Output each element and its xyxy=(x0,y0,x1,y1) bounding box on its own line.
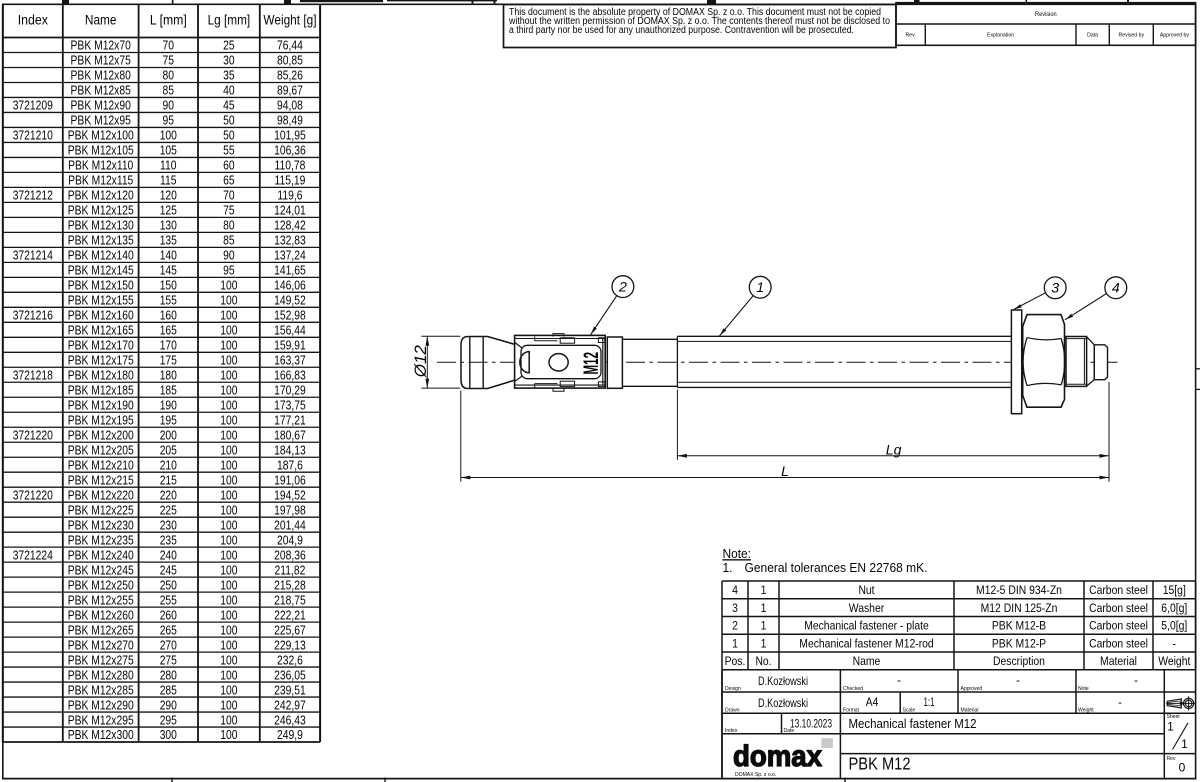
svg-text:Design: Design xyxy=(725,686,741,692)
svg-text:PBK M12x285: PBK M12x285 xyxy=(68,682,134,697)
svg-text:80: 80 xyxy=(223,218,235,233)
svg-text:218,75: 218,75 xyxy=(274,592,306,607)
svg-text:PBK M12x195: PBK M12x195 xyxy=(68,412,134,427)
svg-text:PBK M12x255: PBK M12x255 xyxy=(68,592,134,607)
svg-text:220: 220 xyxy=(160,487,177,502)
svg-text:245: 245 xyxy=(160,562,177,577)
svg-text:PBK M12x90: PBK M12x90 xyxy=(71,98,131,113)
svg-text:L: L xyxy=(781,463,789,479)
svg-text:175: 175 xyxy=(160,352,177,367)
svg-text:265: 265 xyxy=(160,622,177,637)
svg-text:Data: Data xyxy=(1087,33,1099,39)
svg-text:235: 235 xyxy=(160,532,177,547)
svg-text:70: 70 xyxy=(163,38,175,53)
svg-text:M12-5 DIN 934-Zn: M12-5 DIN 934-Zn xyxy=(976,583,1062,597)
svg-text:-: - xyxy=(1134,674,1138,687)
svg-text:PBK M12x225: PBK M12x225 xyxy=(68,502,134,517)
svg-text:Index: Index xyxy=(725,728,738,734)
svg-text:PBK M12x180: PBK M12x180 xyxy=(68,367,134,382)
svg-text:119,6: 119,6 xyxy=(277,188,302,203)
svg-text:Approved by: Approved by xyxy=(1160,33,1189,39)
svg-text:DOMAX Sp. z o.o.: DOMAX Sp. z o.o. xyxy=(735,772,776,778)
svg-text:M12: M12 xyxy=(580,352,603,375)
svg-text:170: 170 xyxy=(160,338,177,353)
svg-text:PBK M12x120: PBK M12x120 xyxy=(68,188,134,203)
svg-text:PBK M12x265: PBK M12x265 xyxy=(68,622,134,637)
svg-text:100: 100 xyxy=(220,338,237,353)
svg-text:PBK M12x85: PBK M12x85 xyxy=(71,83,131,98)
svg-text:194,52: 194,52 xyxy=(274,487,306,502)
svg-text:100: 100 xyxy=(220,323,237,338)
svg-text:Carbon steel: Carbon steel xyxy=(1089,619,1148,633)
svg-text:M12 DIN 125-Zn: M12 DIN 125-Zn xyxy=(981,601,1058,615)
svg-text:94,08: 94,08 xyxy=(277,98,303,113)
svg-text:2: 2 xyxy=(618,279,627,295)
svg-text:60: 60 xyxy=(223,158,235,173)
svg-text:100: 100 xyxy=(220,502,237,517)
svg-text:1: 1 xyxy=(761,601,767,615)
svg-text:PBK M12x160: PBK M12x160 xyxy=(68,308,134,323)
svg-text:PBK M12x250: PBK M12x250 xyxy=(68,577,134,592)
svg-text:4: 4 xyxy=(732,583,738,597)
svg-text:50: 50 xyxy=(223,113,235,128)
svg-text:280: 280 xyxy=(160,667,177,682)
svg-text:Name: Name xyxy=(853,654,881,668)
svg-text:205: 205 xyxy=(160,442,177,457)
svg-text:270: 270 xyxy=(160,637,177,652)
svg-text:1. General tolerances EN 2276: 1. General tolerances EN 22768 mK. xyxy=(723,560,928,575)
svg-text:1: 1 xyxy=(756,280,764,296)
svg-text:115: 115 xyxy=(160,173,177,188)
svg-text:Pos.: Pos. xyxy=(725,654,746,668)
svg-text:Scale: Scale xyxy=(903,707,916,713)
svg-text:89,67: 89,67 xyxy=(277,83,303,98)
svg-text:152,98: 152,98 xyxy=(274,308,306,323)
svg-text:A4: A4 xyxy=(866,696,879,709)
svg-text:D.Kozłowski: D.Kozłowski xyxy=(758,697,808,710)
svg-text:1: 1 xyxy=(732,637,738,651)
svg-text:215: 215 xyxy=(160,472,177,487)
svg-text:PBK M12x125: PBK M12x125 xyxy=(68,203,134,218)
svg-text:Description: Description xyxy=(993,654,1045,668)
svg-text:250: 250 xyxy=(160,577,177,592)
svg-text:204,9: 204,9 xyxy=(277,532,303,547)
svg-text:Note: Note xyxy=(1078,686,1089,692)
svg-text:285: 285 xyxy=(160,682,177,697)
svg-text:Mechanical fastener M12: Mechanical fastener M12 xyxy=(849,716,977,731)
svg-text:Mechanical fastener - plate: Mechanical fastener - plate xyxy=(804,619,929,633)
svg-text:100: 100 xyxy=(220,367,237,382)
svg-text:290: 290 xyxy=(160,697,177,712)
svg-text:246,43: 246,43 xyxy=(274,712,306,727)
svg-text:PBK M12x155: PBK M12x155 xyxy=(68,293,134,308)
svg-text:3: 3 xyxy=(732,601,738,615)
svg-text:100: 100 xyxy=(220,412,237,427)
svg-text:PBK M12x200: PBK M12x200 xyxy=(68,427,134,442)
svg-text:PBK M12x230: PBK M12x230 xyxy=(68,517,134,532)
svg-text:100: 100 xyxy=(220,532,237,547)
svg-text:a third party nor be used for: a third party nor be used for any unauth… xyxy=(509,25,854,36)
svg-text:Rev: Rev xyxy=(1167,756,1176,762)
svg-text:145: 145 xyxy=(160,263,177,278)
svg-text:85: 85 xyxy=(223,233,235,248)
svg-text:165: 165 xyxy=(160,323,177,338)
svg-text:Carbon steel: Carbon steel xyxy=(1089,637,1148,651)
svg-text:-: - xyxy=(1173,637,1177,651)
svg-text:100: 100 xyxy=(220,397,237,412)
svg-text:Carbon steel: Carbon steel xyxy=(1089,583,1148,597)
svg-text:PBK M12x275: PBK M12x275 xyxy=(68,652,134,667)
svg-text:Rev.: Rev. xyxy=(905,33,916,39)
svg-text:100: 100 xyxy=(220,293,237,308)
svg-text:100: 100 xyxy=(220,352,237,367)
svg-text:170,29: 170,29 xyxy=(274,382,306,397)
svg-text:PBK M12x100: PBK M12x100 xyxy=(68,128,134,143)
svg-text:PBK M12x260: PBK M12x260 xyxy=(68,607,134,622)
svg-text:No.: No. xyxy=(755,654,771,668)
svg-text:100: 100 xyxy=(220,577,237,592)
svg-text:Approved: Approved xyxy=(961,686,983,692)
svg-text:1: 1 xyxy=(761,619,767,633)
svg-text:130: 130 xyxy=(160,218,177,233)
svg-text:95: 95 xyxy=(223,263,235,278)
svg-text:232,6: 232,6 xyxy=(277,652,303,667)
svg-text:156,44: 156,44 xyxy=(274,323,306,338)
svg-text:PBK M12x115: PBK M12x115 xyxy=(68,173,133,188)
svg-text:275: 275 xyxy=(160,652,177,667)
svg-text:PBK M12x140: PBK M12x140 xyxy=(68,248,134,263)
svg-text:Index: Index xyxy=(18,12,48,27)
svg-text:110: 110 xyxy=(160,158,177,173)
svg-text:201,44: 201,44 xyxy=(274,517,306,532)
svg-text:135: 135 xyxy=(160,233,177,248)
svg-text:PBK M12x295: PBK M12x295 xyxy=(68,712,134,727)
svg-text:120: 120 xyxy=(160,188,177,203)
svg-text:Lg [mm]: Lg [mm] xyxy=(208,12,251,27)
svg-text:240: 240 xyxy=(160,547,177,562)
svg-text:180,67: 180,67 xyxy=(274,427,306,442)
svg-text:173,75: 173,75 xyxy=(274,397,306,412)
svg-text:100: 100 xyxy=(220,547,237,562)
svg-text:190: 190 xyxy=(160,397,177,412)
svg-text:106,36: 106,36 xyxy=(274,143,306,158)
svg-text:100: 100 xyxy=(220,592,237,607)
svg-text:187,6: 187,6 xyxy=(277,457,303,472)
svg-text:3721216: 3721216 xyxy=(13,308,53,323)
svg-text:100: 100 xyxy=(220,472,237,487)
svg-text:100: 100 xyxy=(220,622,237,637)
svg-text:Revised by: Revised by xyxy=(1119,33,1145,39)
svg-text:3721218: 3721218 xyxy=(13,367,53,382)
svg-text:Drawn: Drawn xyxy=(725,707,740,713)
svg-text:Explanation: Explanation xyxy=(987,33,1014,39)
svg-text:222,21: 222,21 xyxy=(274,607,306,622)
svg-text:159,91: 159,91 xyxy=(274,338,306,353)
svg-text:3721212: 3721212 xyxy=(13,188,53,203)
svg-text:4: 4 xyxy=(1112,281,1120,297)
svg-text:3721220: 3721220 xyxy=(13,427,53,442)
svg-text:PBK M12x300: PBK M12x300 xyxy=(68,727,134,742)
svg-text:PBK M12x205: PBK M12x205 xyxy=(68,442,134,457)
svg-text:90: 90 xyxy=(163,98,175,113)
svg-text:100: 100 xyxy=(220,682,237,697)
svg-text:PBK M12x145: PBK M12x145 xyxy=(68,263,134,278)
svg-text:PBK M12-B: PBK M12-B xyxy=(992,619,1046,633)
svg-text:Checked: Checked xyxy=(843,686,863,692)
svg-text:15[g]: 15[g] xyxy=(1163,583,1186,597)
svg-text:PBK M12x235: PBK M12x235 xyxy=(68,532,134,547)
svg-text:75: 75 xyxy=(163,53,175,68)
svg-text:100: 100 xyxy=(220,727,237,742)
svg-text:PBK M12-P: PBK M12-P xyxy=(992,637,1046,651)
svg-text:PBK M12x270: PBK M12x270 xyxy=(68,637,134,652)
svg-text:13.10.2023: 13.10.2023 xyxy=(790,718,832,731)
svg-text:Material: Material xyxy=(1100,654,1137,668)
svg-text:100: 100 xyxy=(220,562,237,577)
svg-text:L [mm]: L [mm] xyxy=(150,12,187,27)
svg-text:255: 255 xyxy=(160,592,177,607)
svg-text:242,97: 242,97 xyxy=(274,697,306,712)
svg-text:166,83: 166,83 xyxy=(274,367,306,382)
svg-text:PBK M12: PBK M12 xyxy=(849,754,911,774)
svg-text:100: 100 xyxy=(220,712,237,727)
svg-text:100: 100 xyxy=(160,128,177,143)
svg-text:PBK M12x95: PBK M12x95 xyxy=(71,113,131,128)
svg-text:0: 0 xyxy=(1179,761,1186,775)
svg-text:95: 95 xyxy=(163,113,175,128)
svg-text:150: 150 xyxy=(160,278,177,293)
svg-text:Format: Format xyxy=(843,707,859,713)
svg-text:1: 1 xyxy=(761,637,767,651)
svg-text:160: 160 xyxy=(160,308,177,323)
svg-text:Ø12: Ø12 xyxy=(411,345,430,379)
svg-text:100: 100 xyxy=(220,517,237,532)
svg-text:5,0[g]: 5,0[g] xyxy=(1161,619,1187,633)
svg-text:PBK M12x240: PBK M12x240 xyxy=(68,547,134,562)
svg-text:100: 100 xyxy=(220,487,237,502)
svg-text:236,05: 236,05 xyxy=(274,667,306,682)
svg-text:30: 30 xyxy=(223,53,235,68)
svg-text:191,06: 191,06 xyxy=(274,472,306,487)
svg-text:137,24: 137,24 xyxy=(274,248,306,263)
svg-text:184,13: 184,13 xyxy=(274,442,306,457)
svg-text:1: 1 xyxy=(1167,720,1174,734)
svg-text:PBK M12x80: PBK M12x80 xyxy=(71,68,131,83)
svg-text:PBK M12x75: PBK M12x75 xyxy=(71,53,131,68)
svg-text:Carbon steel: Carbon steel xyxy=(1089,601,1148,615)
svg-text:100: 100 xyxy=(220,652,237,667)
svg-text:124,01: 124,01 xyxy=(274,203,306,218)
svg-text:PBK M12x280: PBK M12x280 xyxy=(68,667,134,682)
svg-text:65: 65 xyxy=(223,173,235,188)
svg-text:195: 195 xyxy=(160,412,177,427)
svg-text:100: 100 xyxy=(220,278,237,293)
svg-text:PBK M12x220: PBK M12x220 xyxy=(68,487,134,502)
svg-text:6,0[g]: 6,0[g] xyxy=(1161,601,1187,615)
svg-text:3: 3 xyxy=(1051,281,1059,297)
svg-text:55: 55 xyxy=(223,143,235,158)
svg-text:115,19: 115,19 xyxy=(275,173,306,188)
svg-text:-: - xyxy=(1118,696,1122,709)
svg-text:146,06: 146,06 xyxy=(274,278,306,293)
svg-text:100: 100 xyxy=(220,382,237,397)
svg-text:141,65: 141,65 xyxy=(274,263,306,278)
svg-text:PBK M12x150: PBK M12x150 xyxy=(68,278,134,293)
svg-text:260: 260 xyxy=(160,607,177,622)
svg-text:3721210: 3721210 xyxy=(13,128,53,143)
svg-text:101,95: 101,95 xyxy=(274,128,306,143)
svg-text:PBK M12x290: PBK M12x290 xyxy=(68,697,134,712)
svg-text:239,51: 239,51 xyxy=(274,682,306,697)
svg-text:85,26: 85,26 xyxy=(277,68,303,83)
svg-text:PBK M12x210: PBK M12x210 xyxy=(68,457,134,472)
svg-text:45: 45 xyxy=(223,98,235,113)
svg-text:Weight [g]: Weight [g] xyxy=(263,12,316,27)
svg-text:215,28: 215,28 xyxy=(274,577,306,592)
svg-text:180: 180 xyxy=(160,367,177,382)
svg-text:76,44: 76,44 xyxy=(277,38,303,53)
svg-text:225: 225 xyxy=(160,502,177,517)
svg-text:Washer: Washer xyxy=(849,601,884,615)
svg-text:163,37: 163,37 xyxy=(274,352,306,367)
svg-text:75: 75 xyxy=(223,203,235,218)
svg-text:229,13: 229,13 xyxy=(274,637,306,652)
svg-text:100: 100 xyxy=(220,607,237,622)
svg-text:100: 100 xyxy=(220,667,237,682)
svg-text:208,36: 208,36 xyxy=(274,547,306,562)
svg-text:domax: domax xyxy=(733,740,822,773)
svg-text:Weight: Weight xyxy=(1158,654,1191,668)
svg-text:149,52: 149,52 xyxy=(274,293,306,308)
svg-text:Mechanical fastener M12-rod: Mechanical fastener M12-rod xyxy=(799,637,933,651)
svg-text:110,78: 110,78 xyxy=(275,158,306,173)
svg-text:225,67: 225,67 xyxy=(274,622,306,637)
svg-text:Weight: Weight xyxy=(1078,707,1094,713)
svg-text:PBK M12x190: PBK M12x190 xyxy=(68,397,134,412)
svg-text:1: 1 xyxy=(761,583,767,597)
svg-text:249,9: 249,9 xyxy=(277,727,303,742)
svg-text:PBK M12x165: PBK M12x165 xyxy=(68,323,134,338)
svg-text:100: 100 xyxy=(220,457,237,472)
svg-text:PBK M12x175: PBK M12x175 xyxy=(68,352,134,367)
svg-text:3721209: 3721209 xyxy=(13,98,53,113)
svg-text:1:1: 1:1 xyxy=(924,696,935,709)
svg-text:100: 100 xyxy=(220,637,237,652)
svg-text:25: 25 xyxy=(223,38,235,53)
svg-text:Name: Name xyxy=(85,12,117,27)
svg-text:PBK M12x70: PBK M12x70 xyxy=(71,38,131,53)
svg-text:35: 35 xyxy=(223,68,235,83)
svg-text:40: 40 xyxy=(223,83,235,98)
svg-text:PBK M12x130: PBK M12x130 xyxy=(68,218,134,233)
svg-text:50: 50 xyxy=(223,128,235,143)
svg-text:98,49: 98,49 xyxy=(277,113,303,128)
svg-text:125: 125 xyxy=(160,203,177,218)
svg-text:155: 155 xyxy=(160,293,177,308)
svg-text:132,83: 132,83 xyxy=(274,233,306,248)
svg-text:PBK M12x185: PBK M12x185 xyxy=(68,382,134,397)
svg-text:PBK M12x170: PBK M12x170 xyxy=(68,338,134,353)
svg-text:3721220: 3721220 xyxy=(13,487,53,502)
svg-text:100: 100 xyxy=(220,308,237,323)
svg-text:80,85: 80,85 xyxy=(277,53,303,68)
svg-text:3721214: 3721214 xyxy=(13,248,53,263)
svg-text:140: 140 xyxy=(160,248,177,263)
svg-text:Material: Material xyxy=(961,707,979,713)
svg-text:210: 210 xyxy=(160,457,177,472)
svg-text:100: 100 xyxy=(220,442,237,457)
svg-text:85: 85 xyxy=(163,83,175,98)
svg-text:128,42: 128,42 xyxy=(274,218,306,233)
svg-text:90: 90 xyxy=(223,248,235,263)
svg-text:100: 100 xyxy=(220,697,237,712)
svg-text:Lg: Lg xyxy=(886,441,902,457)
svg-text:-: - xyxy=(897,674,901,687)
svg-text:PBK M12x135: PBK M12x135 xyxy=(68,233,134,248)
svg-text:PBK M12x105: PBK M12x105 xyxy=(68,143,134,158)
svg-text:3721224: 3721224 xyxy=(13,547,53,562)
svg-text:100: 100 xyxy=(220,427,237,442)
svg-text:PBK M12x245: PBK M12x245 xyxy=(68,562,134,577)
svg-text:197,98: 197,98 xyxy=(274,502,306,517)
svg-text:105: 105 xyxy=(160,143,177,158)
svg-text:PBK M12x110: PBK M12x110 xyxy=(68,158,133,173)
svg-text:1: 1 xyxy=(1181,737,1188,751)
svg-text:-: - xyxy=(1016,674,1020,687)
svg-text:Nut: Nut xyxy=(858,583,875,597)
svg-text:Revision: Revision xyxy=(1035,11,1057,18)
svg-text:300: 300 xyxy=(160,727,177,742)
svg-text:295: 295 xyxy=(160,712,177,727)
svg-text:177,21: 177,21 xyxy=(274,412,306,427)
svg-text:2: 2 xyxy=(732,619,738,633)
svg-text:200: 200 xyxy=(160,427,177,442)
svg-text:PBK M12x215: PBK M12x215 xyxy=(68,472,134,487)
svg-text:80: 80 xyxy=(163,68,175,83)
svg-text:185: 185 xyxy=(160,382,177,397)
svg-text:230: 230 xyxy=(160,517,177,532)
svg-text:D.Kozłowski: D.Kozłowski xyxy=(758,675,808,688)
svg-text:211,82: 211,82 xyxy=(275,562,306,577)
svg-text:70: 70 xyxy=(223,188,235,203)
